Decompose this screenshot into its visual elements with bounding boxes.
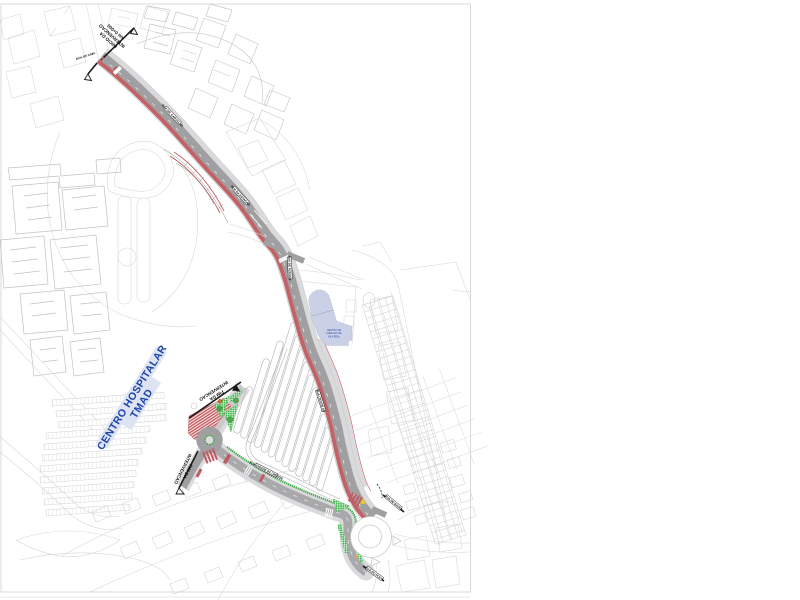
svg-text:VILA REAL: VILA REAL bbox=[328, 335, 341, 338]
